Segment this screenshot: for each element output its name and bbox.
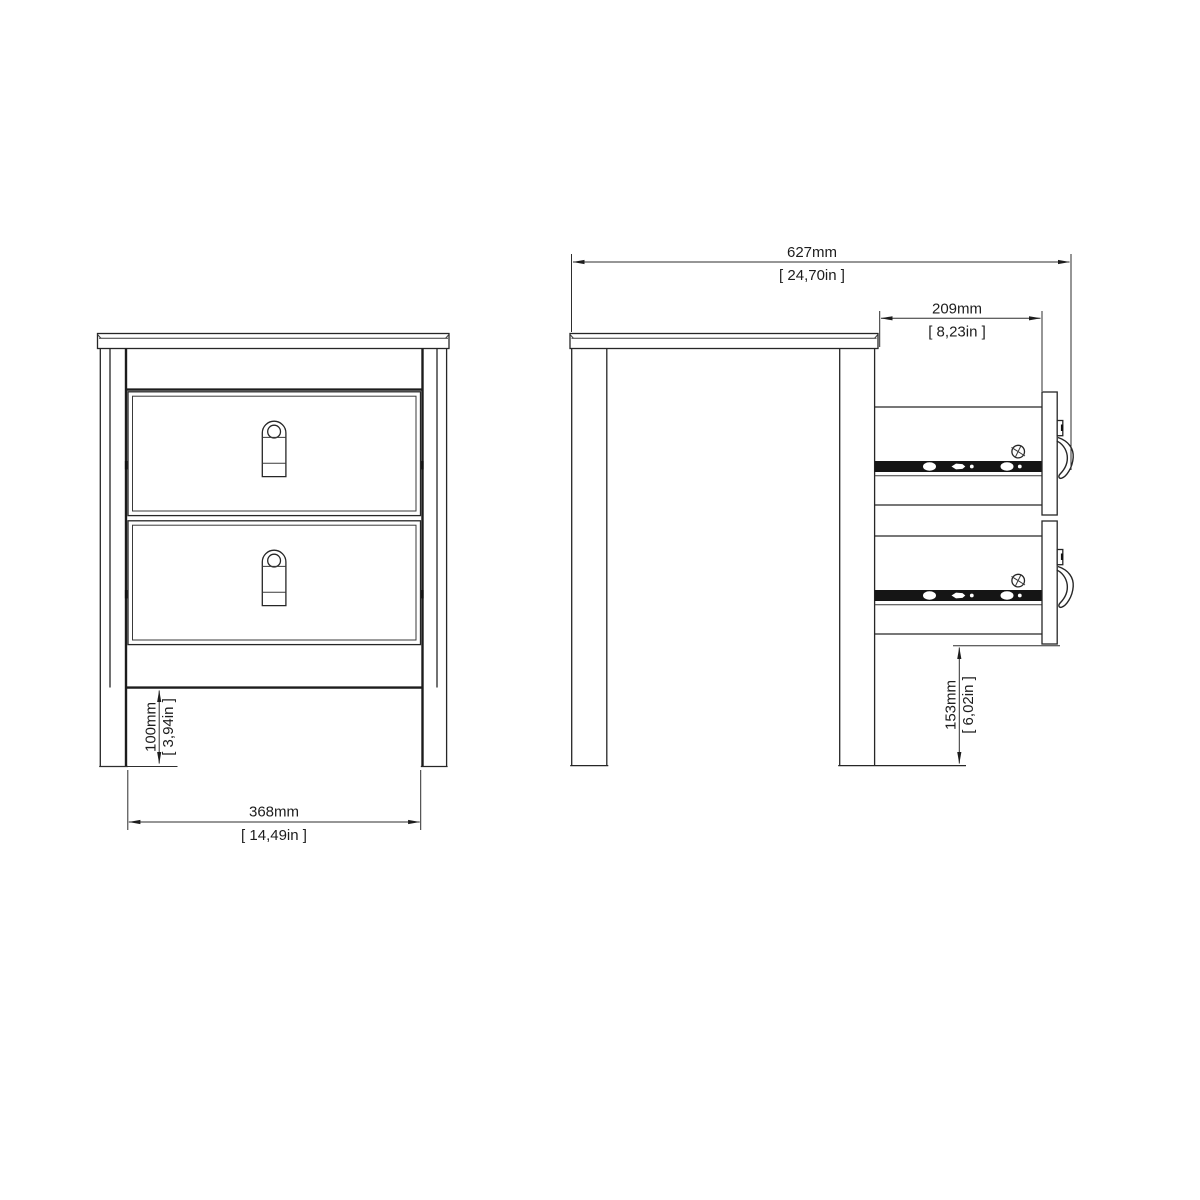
dim-label-368-inch: [ 14,49in ]	[241, 827, 307, 844]
dimension-plinth-height: 100mm [ 3,94in ]	[99, 691, 177, 767]
dimension-drawer-clearance: 153mm [ 6,02in ]	[943, 646, 1060, 764]
dim-label-627-inch: [ 24,70in ]	[779, 267, 845, 284]
dim-ext-lines-368	[128, 770, 421, 830]
right-leg	[421, 349, 448, 767]
technical-drawing-page: 100mm [ 3,94in ] 368mm [ 14,49in ] 627mm…	[0, 0, 1200, 1200]
tabletop-side	[570, 334, 878, 349]
tabletop-side-corner-bevels	[570, 335, 878, 339]
front-leg	[840, 349, 875, 766]
tabletop-corner-bevels	[98, 335, 450, 339]
tabletop-side-outline	[570, 334, 878, 349]
upper-drawer-box	[875, 392, 1074, 515]
dim-label-627-mm: 627mm	[787, 244, 837, 261]
upper-drawer-front	[125, 392, 424, 516]
dim-label-100-mm: 100mm	[143, 702, 160, 752]
front-view: 100mm [ 3,94in ] 368mm [ 14,49in ]	[98, 334, 450, 845]
dim-ext-lines-627	[572, 254, 1072, 470]
furniture-technical-drawing: 100mm [ 3,94in ] 368mm [ 14,49in ] 627mm…	[0, 0, 1200, 1200]
dimension-overall-depth: 627mm [ 24,70in ]	[572, 244, 1072, 470]
left-leg	[99, 349, 128, 767]
dim-label-100-inch: [ 3,94in ]	[160, 698, 177, 756]
side-view: 627mm [ 24,70in ] 209mm [ 8,23in ] 153mm…	[570, 244, 1073, 766]
dim-label-209-mm: 209mm	[932, 301, 982, 318]
dim-label-153-inch: [ 6,02in ]	[960, 676, 977, 734]
tabletop-outline	[98, 334, 450, 349]
lower-drawer-front	[125, 521, 424, 645]
dim-label-153-mm: 153mm	[943, 680, 960, 730]
back-leg	[570, 349, 608, 766]
dimension-inner-width: 368mm [ 14,49in ]	[128, 770, 421, 844]
dim-label-368-mm: 368mm	[249, 804, 299, 821]
tabletop	[98, 334, 450, 349]
dim-label-209-inch: [ 8,23in ]	[928, 324, 986, 341]
dimension-drawer-depth: 209mm [ 8,23in ]	[880, 301, 1042, 392]
lower-drawer-box	[875, 521, 1074, 644]
